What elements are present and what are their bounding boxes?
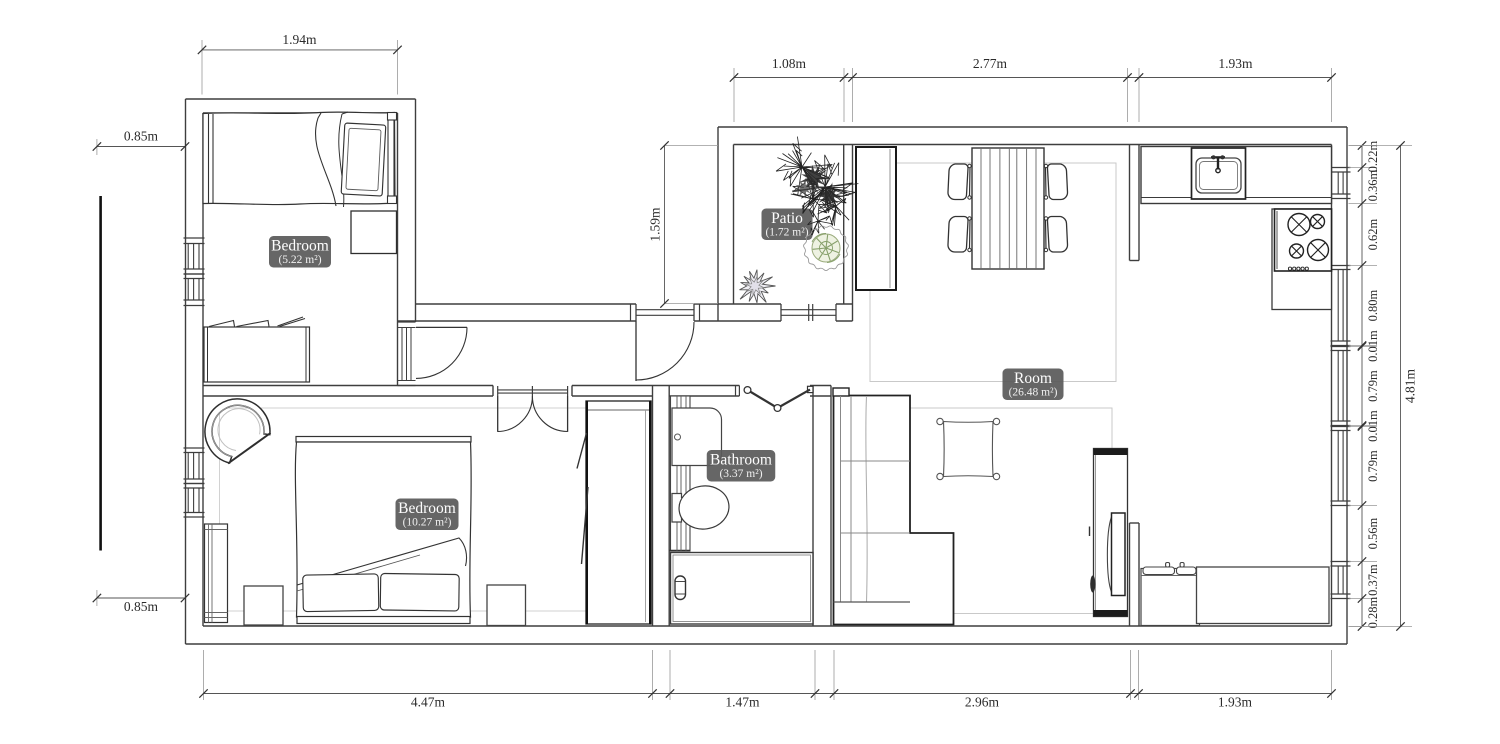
svg-text:4.47m: 4.47m: [411, 695, 446, 710]
svg-text:4.81m: 4.81m: [1403, 368, 1418, 403]
svg-text:0.79m: 0.79m: [1366, 450, 1380, 482]
svg-text:0.28m: 0.28m: [1366, 596, 1380, 628]
svg-text:0.79m: 0.79m: [1366, 370, 1380, 402]
svg-text:0.80m: 0.80m: [1366, 289, 1380, 321]
svg-text:0.85m: 0.85m: [124, 129, 159, 144]
svg-text:Patio: Patio: [771, 210, 803, 227]
svg-text:1.93m: 1.93m: [1218, 695, 1253, 710]
svg-text:1.59m: 1.59m: [648, 207, 663, 242]
svg-text:(3.37 m²): (3.37 m²): [719, 468, 762, 480]
svg-text:0.37m: 0.37m: [1366, 564, 1380, 596]
svg-text:1.47m: 1.47m: [725, 695, 760, 710]
svg-text:Bathroom: Bathroom: [710, 452, 772, 469]
svg-text:(26.48 m²): (26.48 m²): [1009, 387, 1058, 399]
svg-text:1.94m: 1.94m: [282, 32, 317, 47]
svg-text:0.62m: 0.62m: [1366, 218, 1380, 250]
svg-text:1.08m: 1.08m: [772, 56, 807, 71]
svg-text:0.01m: 0.01m: [1366, 330, 1380, 362]
svg-text:(5.22 m²): (5.22 m²): [278, 254, 321, 266]
svg-text:0.56m: 0.56m: [1366, 517, 1380, 549]
svg-text:(1.72 m²): (1.72 m²): [765, 227, 808, 239]
svg-text:Room: Room: [1014, 370, 1052, 387]
svg-text:0.36m: 0.36m: [1366, 169, 1380, 201]
svg-text:Bedroom: Bedroom: [398, 500, 456, 517]
svg-text:0.85m: 0.85m: [124, 599, 159, 614]
svg-text:0.01m: 0.01m: [1366, 410, 1380, 442]
svg-text:2.77m: 2.77m: [973, 56, 1008, 71]
svg-text:Bedroom: Bedroom: [271, 238, 329, 255]
svg-text:1.93m: 1.93m: [1218, 56, 1253, 71]
svg-text:(10.27 m²): (10.27 m²): [403, 517, 452, 529]
svg-text:2.96m: 2.96m: [965, 695, 1000, 710]
